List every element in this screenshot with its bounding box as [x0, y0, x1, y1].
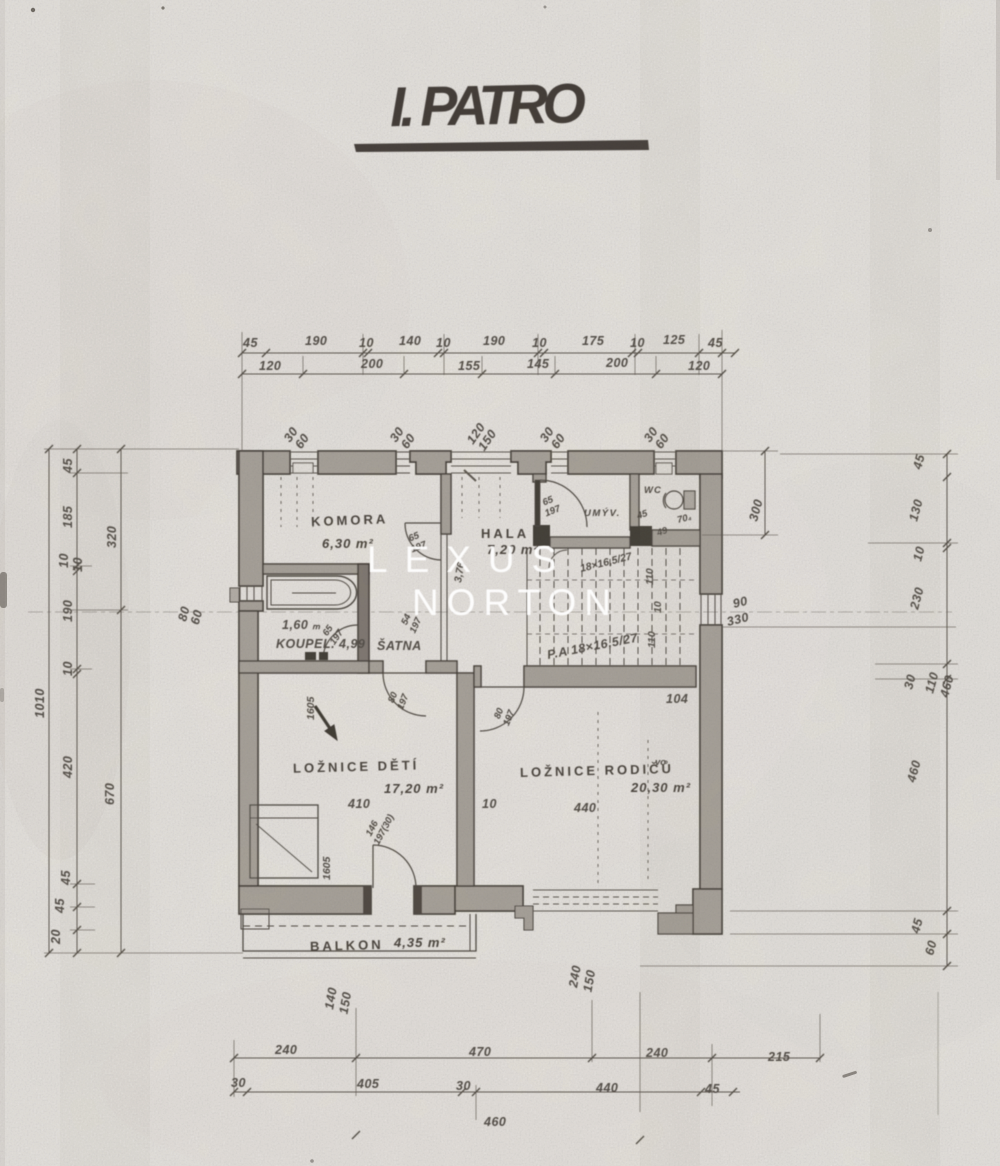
svg-text:LEXUS: LEXUS	[367, 539, 573, 580]
svg-text:NORTON: NORTON	[412, 582, 619, 623]
